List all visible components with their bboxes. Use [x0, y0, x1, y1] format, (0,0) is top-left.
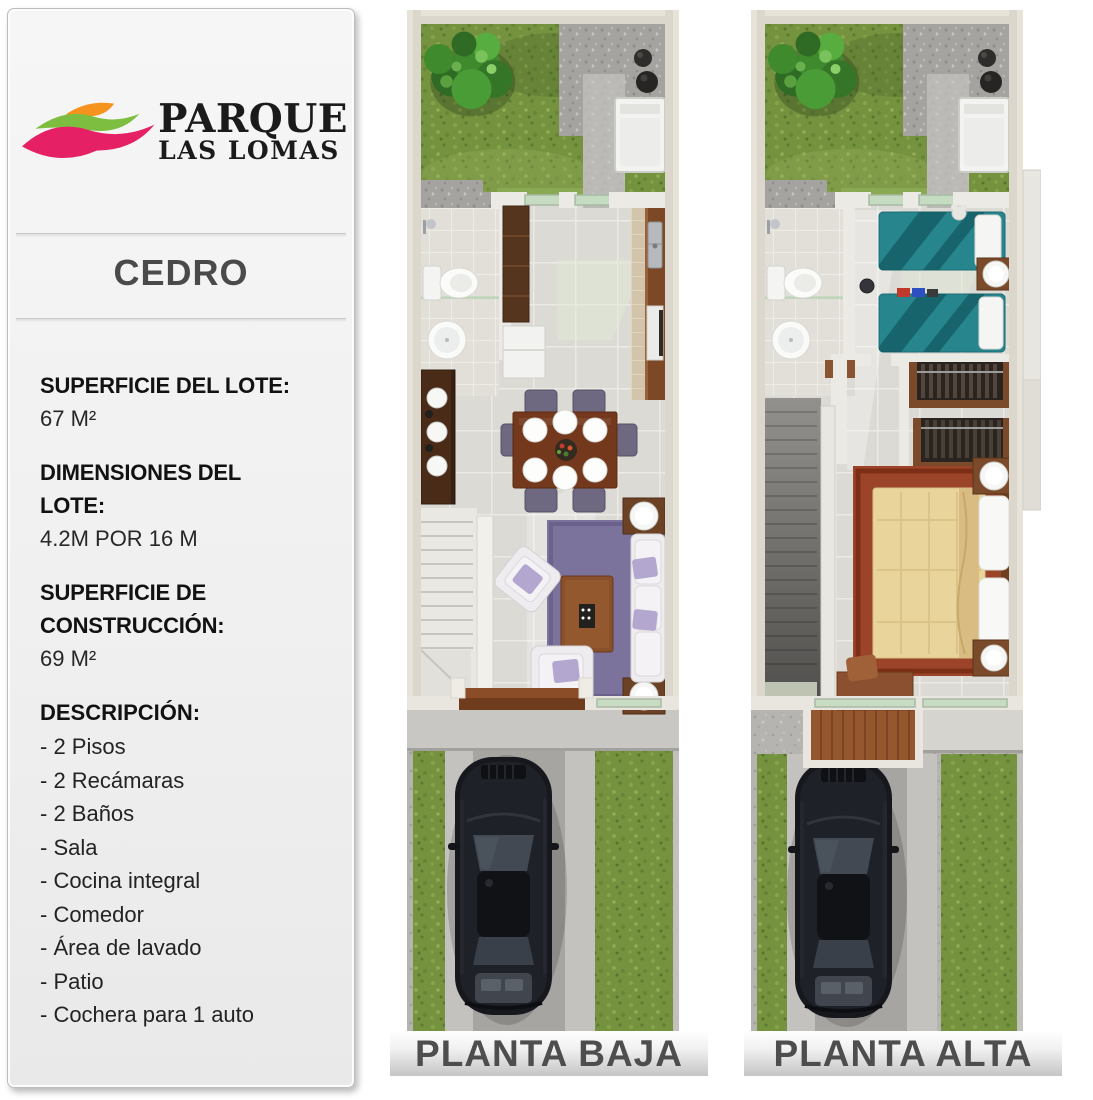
description-item: - Cochera para 1 auto [40, 998, 336, 1032]
description-item: - 2 Recámaras [40, 764, 336, 798]
description-item: - Sala [40, 831, 336, 865]
planta-baja-label: PLANTA BAJA [390, 1031, 708, 1076]
model-title: CEDRO [8, 252, 354, 294]
planta-alta-floorplan [751, 10, 1041, 1032]
bathroom-baja [421, 208, 511, 396]
brand-name-line2: LAS LOMAS [158, 138, 348, 164]
description-item: - 2 Pisos [40, 730, 336, 764]
driveway-baja [407, 710, 679, 1032]
spec-label: SUPERFICIE DE [40, 576, 336, 609]
brand-logo: PARQUE LAS LOMAS [22, 89, 348, 177]
divider [16, 318, 346, 323]
spec-lot-surface: SUPERFICIE DEL LOTE: 67 M² [40, 369, 336, 435]
planta-baja-floorplan [407, 10, 679, 1032]
patio-garden [419, 22, 667, 208]
description-item: - Cocina integral [40, 864, 336, 898]
spec-lot-dimensions: DIMENSIONES DEL LOTE: 4.2M POR 16 M [40, 456, 336, 555]
description-item: - Área de lavado [40, 931, 336, 965]
spec-label: CONSTRUCCIÓN: [40, 609, 336, 642]
spec-value: 4.2M POR 16 M [40, 522, 336, 555]
description-label: DESCRIPCIÓN: [40, 696, 336, 730]
spec-label: DIMENSIONES DEL [40, 456, 336, 489]
planta-alta-render [751, 10, 1041, 1032]
kitchen [631, 208, 665, 400]
info-panel: PARQUE LAS LOMAS CEDRO SUPERFICIE DEL LO… [7, 8, 355, 1088]
brand-name-line1: PARQUE [158, 102, 348, 138]
car-icon [448, 757, 559, 1015]
brand-name: PARQUE LAS LOMAS [158, 102, 348, 164]
description-item: - Patio [40, 965, 336, 999]
description-item: - Comedor [40, 898, 336, 932]
spec-list: SUPERFICIE DEL LOTE: 67 M² DIMENSIONES D… [40, 369, 336, 1032]
description-section: DESCRIPCIÓN: - 2 Pisos - 2 Recámaras - 2… [40, 696, 336, 1032]
spec-construction-surface: SUPERFICIE DE CONSTRUCCIÓN: 69 M² [40, 576, 336, 675]
planta-alta-label: PLANTA ALTA [744, 1031, 1062, 1076]
spec-label: LOTE: [40, 489, 336, 522]
divider [16, 233, 346, 238]
patio-garden [763, 22, 1011, 208]
spec-value: 69 M² [40, 642, 336, 675]
spec-label: SUPERFICIE DEL LOTE: [40, 369, 336, 402]
logo-swoosh-icon [22, 89, 156, 177]
master-bedroom [837, 458, 1015, 710]
console-table [421, 370, 455, 504]
spec-value: 67 M² [40, 402, 336, 435]
planta-baja-render [407, 10, 679, 1032]
terrace [803, 710, 923, 768]
stairs-alta [765, 398, 835, 698]
stairs-baja [421, 508, 493, 698]
description-item: - 2 Baños [40, 797, 336, 831]
car-icon [788, 760, 899, 1018]
